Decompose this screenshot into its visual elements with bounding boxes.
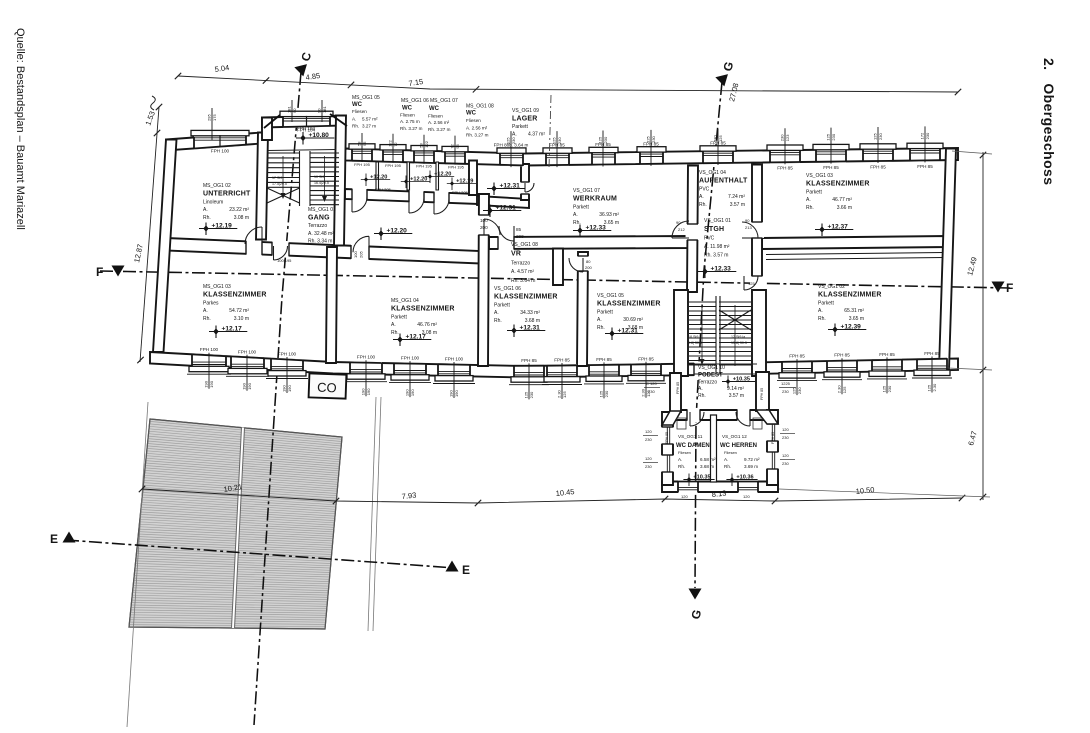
svg-text:230: 230 (780, 134, 785, 141)
svg-text:190: 190 (449, 390, 454, 397)
svg-text:3.27 m: 3.27 m (362, 124, 376, 129)
svg-text:172: 172 (920, 132, 925, 139)
svg-text:120: 120 (782, 427, 789, 432)
svg-text:A.: A. (391, 322, 396, 328)
svg-text:+12.33: +12.33 (586, 225, 607, 232)
svg-text:34.33 m²: 34.33 m² (520, 310, 540, 316)
svg-text:FPH 85: FPH 85 (760, 388, 764, 400)
svg-text:6.58 m²: 6.58 m² (700, 457, 716, 462)
svg-text:9.72 m²: 9.72 m² (744, 457, 760, 462)
svg-text:+12.20: +12.20 (387, 228, 408, 235)
svg-text:3.57 m: 3.57 m (730, 202, 745, 208)
svg-text:125: 125 (748, 281, 755, 286)
svg-text:Rh.: Rh. (818, 316, 826, 322)
svg-text:Parkett: Parkett (494, 302, 510, 308)
svg-text:+12.33: +12.33 (711, 266, 732, 273)
svg-text:VS_OG1 04: VS_OG1 04 (699, 170, 726, 176)
svg-text:Rh.: Rh. (203, 316, 211, 322)
svg-text:PODEST: PODEST (698, 373, 723, 379)
svg-text:Parkett: Parkett (512, 124, 528, 130)
svg-text:295: 295 (207, 114, 212, 121)
svg-text:8.13: 8.13 (711, 489, 726, 499)
svg-text:125: 125 (599, 390, 604, 397)
svg-text:2.30: 2.30 (641, 388, 646, 397)
svg-text:FPH 85: FPH 85 (870, 165, 886, 170)
svg-text:190: 190 (287, 385, 292, 392)
svg-text:125: 125 (873, 133, 878, 140)
svg-text:Terrazzo: Terrazzo (511, 260, 530, 266)
svg-text:FPH 205: FPH 205 (375, 187, 392, 192)
svg-text:72: 72 (450, 143, 455, 148)
svg-text:+10.80: +10.80 (309, 132, 330, 139)
svg-text:120: 120 (743, 494, 750, 499)
svg-text:A.: A. (818, 308, 823, 314)
svg-text:230: 230 (887, 385, 892, 392)
svg-text:FPH 85: FPH 85 (643, 141, 659, 146)
svg-text:FPH 85: FPH 85 (676, 382, 680, 394)
svg-text:Fliesen: Fliesen (724, 450, 737, 455)
svg-text:KLASSENZIMMER: KLASSENZIMMER (806, 181, 870, 188)
svg-text:Rh.: Rh. (806, 205, 814, 211)
svg-text:Rh.: Rh. (699, 202, 707, 208)
svg-text:190: 190 (405, 389, 410, 396)
svg-text:FPH 100: FPH 100 (200, 347, 219, 352)
svg-text:Rh.: Rh. (494, 318, 502, 324)
svg-text:VS_OG1 10: VS_OG1 10 (698, 365, 725, 371)
svg-text:18 St9: 18 St9 (688, 335, 698, 339)
svg-text:F: F (96, 265, 103, 279)
svg-text:Parkett: Parkett (806, 189, 822, 195)
svg-text:+12.37: +12.37 (828, 224, 849, 231)
svg-text:125: 125 (842, 386, 847, 393)
svg-text:WERKRAUM: WERKRAUM (573, 196, 617, 203)
svg-text:+12.20: +12.20 (370, 175, 387, 181)
svg-text:KLASSENZIMMER: KLASSENZIMMER (203, 292, 267, 299)
svg-text:3.08 m: 3.08 m (234, 215, 249, 221)
svg-text:90: 90 (676, 220, 681, 225)
svg-text:STGH: STGH (704, 226, 724, 233)
svg-text:3.68 m: 3.68 m (700, 464, 714, 469)
svg-text:Rh.: Rh. (391, 330, 399, 336)
svg-text:190: 190 (209, 380, 214, 387)
svg-text:VS_OG1 03: VS_OG1 03 (806, 173, 833, 179)
svg-text:Parkett: Parkett (597, 309, 613, 315)
svg-text:46.77 m²: 46.77 m² (832, 197, 852, 203)
svg-text:A. 4.57 m²: A. 4.57 m² (511, 269, 534, 275)
svg-text:MS_OG1 08: MS_OG1 08 (466, 104, 494, 110)
svg-text:Parkett: Parkett (818, 300, 834, 306)
svg-text:+12.20: +12.20 (434, 172, 451, 178)
svg-text:FPH 100: FPH 100 (401, 356, 420, 361)
svg-text:KLASSENZIMMER: KLASSENZIMMER (494, 294, 558, 301)
svg-text:MS_OG1 03: MS_OG1 03 (203, 284, 231, 290)
svg-text:FPH 85: FPH 85 (771, 432, 775, 444)
svg-text:Terrazzo: Terrazzo (308, 223, 327, 229)
svg-text:CO: CO (317, 380, 337, 396)
svg-text:Fliesen: Fliesen (466, 118, 481, 123)
svg-text:Rh.: Rh. (698, 393, 706, 399)
svg-text:230: 230 (782, 435, 789, 440)
svg-text:3.69 m: 3.69 m (744, 464, 758, 469)
svg-text:+12.19: +12.19 (212, 223, 233, 230)
svg-text:FPH 85: FPH 85 (777, 166, 793, 171)
svg-text:Rh. 3.57 m: Rh. 3.57 m (704, 253, 728, 259)
svg-text:A.: A. (203, 308, 208, 314)
svg-text:190: 190 (204, 380, 209, 387)
svg-text:230: 230 (797, 387, 802, 394)
svg-text:FPH 85: FPH 85 (710, 141, 726, 146)
svg-text:Parkett: Parkett (391, 314, 407, 320)
svg-text:Terrazzo: Terrazzo (698, 379, 717, 385)
svg-text:+12.31: +12.31 (496, 205, 517, 212)
svg-text:230: 230 (782, 461, 789, 466)
svg-text:Fliesen: Fliesen (678, 450, 691, 455)
svg-text:FPH 195: FPH 195 (385, 163, 402, 168)
svg-text:58: 58 (419, 142, 424, 147)
svg-text:90: 90 (745, 218, 750, 223)
svg-text:VS_OG1 11: VS_OG1 11 (678, 434, 703, 439)
svg-text:+10.35: +10.35 (733, 377, 750, 383)
svg-text:PVC: PVC (704, 236, 715, 242)
svg-text:WC: WC (402, 106, 413, 112)
svg-text:Rh.: Rh. (678, 464, 685, 469)
svg-text:2.30: 2.30 (557, 389, 562, 398)
svg-text:54.72 m²: 54.72 m² (229, 308, 249, 314)
svg-text:FPH 100: FPH 100 (211, 149, 230, 154)
svg-text:190: 190 (410, 389, 415, 396)
svg-text:FPH 195: FPH 195 (354, 162, 371, 167)
svg-text:200: 200 (585, 265, 592, 270)
svg-text:23.22 m²: 23.22 m² (229, 207, 249, 213)
svg-text:FPH 85: FPH 85 (595, 142, 611, 147)
svg-text:95: 95 (362, 141, 367, 146)
svg-text:Linoleum: Linoleum (203, 199, 223, 205)
svg-text:95: 95 (455, 143, 460, 148)
svg-text:125: 125 (927, 384, 932, 391)
svg-text:Rh.: Rh. (352, 124, 359, 129)
svg-text:A.: A. (494, 310, 499, 316)
svg-text:MS_OG1 05: MS_OG1 05 (352, 95, 380, 101)
svg-text:122: 122 (388, 139, 393, 146)
svg-text:200: 200 (516, 234, 524, 239)
svg-text:VR: VR (511, 251, 521, 258)
svg-text:230: 230 (645, 464, 652, 469)
svg-text:FPH 85: FPH 85 (834, 353, 850, 358)
svg-text:16.4|29.5: 16.4|29.5 (314, 181, 329, 185)
svg-text:FPH 195: FPH 195 (448, 165, 465, 170)
svg-text:190: 190 (366, 388, 371, 395)
svg-text:A.: A. (597, 317, 602, 323)
svg-text:9.14 m²: 9.14 m² (727, 386, 744, 392)
svg-text:100|195: 100|195 (277, 258, 292, 263)
svg-text:FPH 85: FPH 85 (924, 351, 940, 356)
svg-text:65.31 m²: 65.31 m² (844, 308, 864, 314)
svg-text:A.: A. (352, 117, 356, 122)
svg-text:Parkett: Parkett (573, 204, 589, 210)
svg-text:E: E (50, 532, 58, 546)
svg-text:190: 190 (454, 390, 459, 397)
svg-text:190: 190 (361, 388, 366, 395)
svg-text:3.65 m: 3.65 m (604, 220, 619, 226)
svg-text:MS_OG1 02: MS_OG1 02 (203, 183, 231, 189)
svg-text:MS_OG1 01: MS_OG1 01 (308, 207, 336, 213)
svg-text:FPH 85: FPH 85 (638, 356, 654, 361)
svg-text:Rh. 3.64 m: Rh. 3.64 m (511, 278, 535, 284)
svg-text:WC HERREN: WC HERREN (720, 443, 757, 449)
svg-text:+12.31: +12.31 (500, 183, 521, 190)
svg-text:C 120: C 120 (646, 381, 657, 386)
svg-text:72: 72 (393, 142, 398, 147)
svg-text:FPH 85: FPH 85 (549, 143, 565, 148)
svg-text:PVC: PVC (699, 186, 710, 192)
svg-text:VS_OG1 12: VS_OG1 12 (722, 434, 747, 439)
svg-text:VS_OG1 05: VS_OG1 05 (597, 293, 624, 299)
svg-text:F: F (1006, 281, 1013, 295)
svg-text:E: E (462, 563, 470, 577)
svg-text:90: 90 (317, 108, 322, 113)
svg-text:175: 175 (212, 114, 217, 121)
svg-text:VS_OG1 06: VS_OG1 06 (494, 286, 521, 292)
svg-text:FPH 85: FPH 85 (917, 164, 933, 169)
svg-text:KLASSENZIMMER: KLASSENZIMMER (391, 306, 455, 313)
svg-text:230: 230 (782, 389, 789, 394)
svg-text:3.66 m: 3.66 m (837, 205, 852, 211)
svg-text:KLASSENZIMMER: KLASSENZIMMER (818, 292, 882, 299)
svg-text:Rh.: Rh. (203, 215, 211, 221)
svg-text:FPH 85: FPH 85 (596, 357, 612, 362)
svg-text:AUFENTHALT: AUFENTHALT (699, 178, 748, 185)
svg-text:Rh.: Rh. (724, 464, 731, 469)
svg-text:MS_OG1 04: MS_OG1 04 (391, 298, 419, 304)
svg-text:230: 230 (878, 133, 883, 140)
svg-text:FPH 88b. 3.64 m: FPH 88b. 3.64 m (494, 143, 529, 148)
svg-text:120: 120 (782, 453, 789, 458)
svg-text:200: 200 (480, 225, 488, 230)
svg-text:190: 190 (242, 382, 247, 389)
svg-text:4.37 m²: 4.37 m² (528, 132, 545, 138)
svg-text:125: 125 (826, 133, 831, 140)
svg-text:90: 90 (292, 108, 297, 113)
svg-text:FPH 85: FPH 85 (789, 354, 805, 359)
svg-text:+12.39: +12.39 (841, 324, 862, 331)
svg-text:FPH 100: FPH 100 (238, 349, 257, 354)
svg-text:FPH 205: FPH 205 (452, 190, 469, 195)
svg-text:125: 125 (524, 391, 529, 398)
svg-text:+12.20: +12.20 (410, 177, 427, 183)
svg-text:MS_OG1 06: MS_OG1 06 (401, 98, 429, 104)
svg-text:125: 125 (882, 385, 887, 392)
svg-text:58: 58 (357, 141, 362, 146)
svg-text:FPH 100: FPH 100 (278, 352, 297, 357)
svg-text:230: 230 (645, 437, 652, 442)
svg-text:12 St9 la: 12 St9 la (731, 335, 745, 339)
svg-text:A. 2.56 m²: A. 2.56 m² (466, 126, 488, 131)
svg-text:A.: A. (203, 207, 208, 213)
svg-text:Fliesen: Fliesen (428, 114, 443, 119)
svg-text:190: 190 (282, 385, 287, 392)
svg-text:Fliesen: Fliesen (352, 109, 367, 114)
svg-text:GANG: GANG (308, 215, 330, 222)
svg-text:A.: A. (806, 197, 811, 203)
svg-text:212: 212 (678, 227, 685, 232)
svg-text:WC: WC (352, 102, 363, 108)
svg-text:VS_OG1 09: VS_OG1 09 (512, 108, 539, 114)
svg-text:17.5|29.5: 17.5|29.5 (272, 182, 287, 186)
svg-text:2. Obergeschoss: 2. Obergeschoss (1041, 58, 1057, 185)
svg-text:230: 230 (604, 390, 609, 397)
svg-text:VS_OG1 02: VS_OG1 02 (818, 284, 845, 290)
svg-text:3.68 m: 3.68 m (525, 318, 540, 324)
svg-text:FPH 195: FPH 195 (416, 164, 433, 169)
svg-text:MS_OG1 07: MS_OG1 07 (430, 98, 458, 104)
svg-text:+12.19: +12.19 (456, 179, 473, 185)
svg-text:5.57 m²: 5.57 m² (362, 117, 378, 122)
svg-text:WC: WC (429, 106, 440, 112)
svg-text:125: 125 (562, 391, 567, 398)
svg-text:3.10 m: 3.10 m (234, 316, 249, 322)
svg-text:UNTERRICHT: UNTERRICHT (203, 191, 251, 198)
svg-text:+12.17: +12.17 (406, 334, 427, 341)
svg-text:10 St9: 10 St9 (314, 175, 324, 179)
svg-text:120: 120 (681, 494, 688, 499)
svg-text:A.: A. (724, 457, 728, 462)
svg-text:FPH 100: FPH 100 (445, 357, 464, 362)
svg-text:181: 181 (287, 106, 292, 113)
svg-text:Rh. 3.34 m: Rh. 3.34 m (308, 239, 332, 245)
svg-text:LAGER: LAGER (512, 116, 538, 123)
svg-text:Rh. 3.27 m: Rh. 3.27 m (400, 126, 423, 131)
svg-text:190: 190 (247, 382, 252, 389)
svg-text:VS_OG1 01: VS_OG1 01 (704, 218, 731, 224)
svg-text:+10.35: +10.35 (693, 475, 710, 481)
svg-text:17 St9: 17 St9 (272, 176, 282, 180)
svg-text:230: 230 (529, 391, 534, 398)
svg-text:Rh.: Rh. (597, 325, 605, 331)
svg-text:9.8| 30.0: 9.8| 30.0 (688, 341, 702, 345)
svg-text:VS_OG1 07: VS_OG1 07 (573, 188, 600, 194)
svg-text:122: 122 (424, 140, 429, 147)
svg-text:A. 2.75 m: A. 2.75 m (400, 119, 420, 124)
svg-text:KLASSENZIMMER: KLASSENZIMMER (597, 301, 661, 308)
svg-text:FPH 85: FPH 85 (823, 165, 839, 170)
svg-text:Quelle: Bestandsplan – Bauamt: Quelle: Bestandsplan – Bauamt Mariazell (14, 28, 26, 230)
svg-text:120: 120 (645, 456, 652, 461)
svg-text:230: 230 (831, 133, 836, 140)
svg-text:A.: A. (512, 132, 517, 138)
svg-text:Parkes: Parkes (203, 300, 219, 306)
svg-text:FPH 100: FPH 100 (357, 355, 376, 360)
svg-text:213: 213 (745, 225, 752, 230)
svg-text:7.24 m²: 7.24 m² (728, 194, 745, 200)
svg-text:2.30: 2.30 (932, 383, 937, 392)
svg-text:A.: A. (698, 386, 703, 392)
svg-text:100: 100 (480, 218, 488, 223)
svg-text:80: 80 (586, 259, 591, 264)
svg-text:+12.31: +12.31 (520, 325, 541, 332)
svg-text:120: 120 (645, 429, 652, 434)
svg-text:205: 205 (359, 251, 364, 258)
svg-text:230: 230 (925, 132, 930, 139)
svg-text:+12.31: +12.31 (618, 328, 639, 335)
svg-text:FPH 85: FPH 85 (665, 432, 669, 444)
svg-text:181: 181 (322, 106, 327, 113)
svg-text:123: 123 (785, 134, 790, 141)
svg-text:230: 230 (648, 389, 655, 394)
svg-text:A.: A. (573, 212, 578, 218)
svg-text:A. 11.98 m²: A. 11.98 m² (704, 244, 730, 250)
svg-text:+12.17: +12.17 (222, 326, 243, 333)
svg-text:15.8| 30.3: 15.8| 30.3 (731, 341, 747, 345)
svg-text:3.65 m: 3.65 m (849, 316, 864, 322)
svg-text:Fliesen: Fliesen (400, 113, 415, 118)
svg-text:FPH 85: FPH 85 (879, 352, 895, 357)
svg-text:1225: 1225 (781, 381, 791, 386)
svg-text:Rh. 3.27 m: Rh. 3.27 m (428, 127, 451, 132)
svg-text:FPH 85: FPH 85 (521, 358, 537, 363)
svg-text:7.93: 7.93 (401, 491, 416, 501)
svg-text:FPH 85: FPH 85 (554, 358, 570, 363)
svg-text:3.57 m: 3.57 m (729, 393, 744, 399)
svg-text:WC DAMEN: WC DAMEN (676, 443, 710, 449)
svg-text:A.: A. (678, 457, 682, 462)
svg-text:A.: A. (699, 194, 704, 200)
svg-text:VS_OG1 08: VS_OG1 08 (511, 242, 538, 248)
svg-text:30.69 m²: 30.69 m² (623, 317, 643, 323)
svg-text:A. 32.48 m²: A. 32.48 m² (308, 231, 334, 237)
svg-text:WC: WC (466, 111, 477, 117)
svg-text:Rh. 3.27 m: Rh. 3.27 m (466, 133, 489, 138)
svg-text:A. 2.56 m²: A. 2.56 m² (428, 120, 450, 125)
svg-text:36.93 m²: 36.93 m² (599, 212, 619, 218)
svg-text:85: 85 (516, 227, 522, 232)
svg-text:100: 100 (353, 251, 358, 258)
svg-text:+10.36: +10.36 (736, 475, 753, 481)
svg-text:2.30: 2.30 (837, 385, 842, 394)
svg-text:46.76 m²: 46.76 m² (417, 322, 437, 328)
